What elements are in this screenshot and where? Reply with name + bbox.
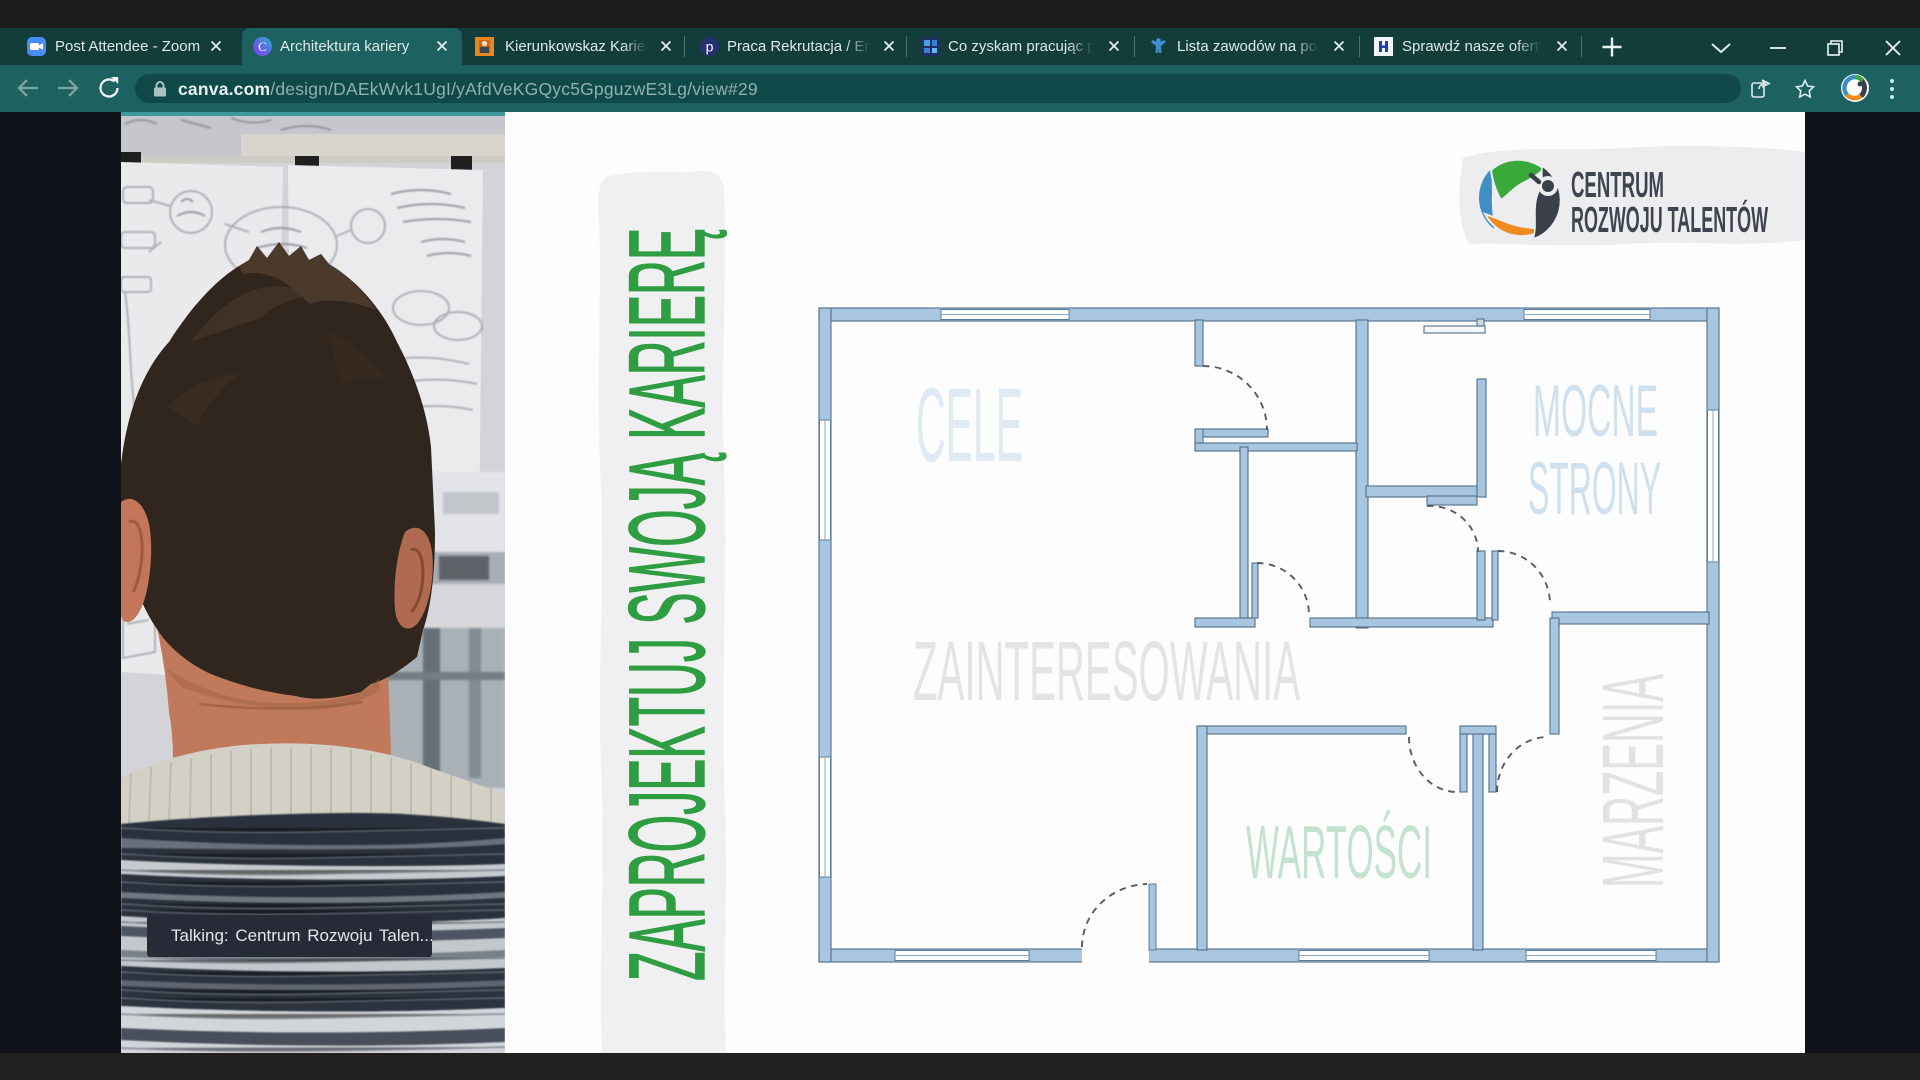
svg-text:WARTOŚCI: WARTOŚCI: [1246, 810, 1432, 894]
svg-text:MARZENIA: MARZENIA: [1585, 674, 1682, 888]
svg-text:MOCNE: MOCNE: [1533, 371, 1658, 452]
svg-text:STRONY: STRONY: [1528, 447, 1661, 530]
svg-text:p: p: [706, 39, 714, 55]
svg-text:ZAINTERESOWANIA: ZAINTERESOWANIA: [913, 624, 1300, 718]
svg-text:CELE: CELE: [916, 367, 1023, 484]
svg-text:C: C: [258, 39, 267, 54]
